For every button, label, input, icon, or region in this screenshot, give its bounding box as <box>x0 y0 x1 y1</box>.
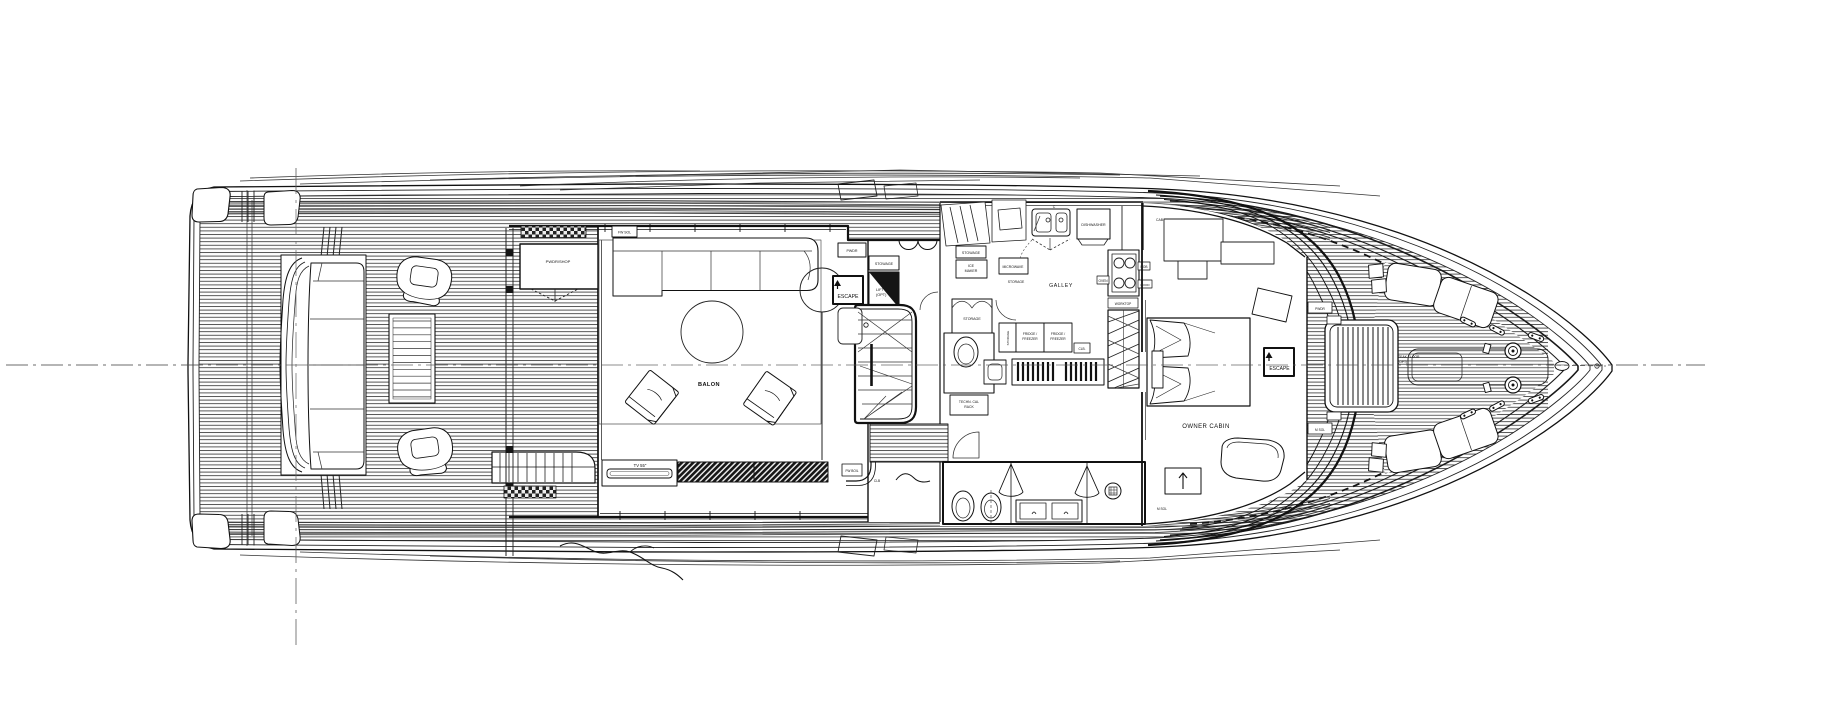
svg-text:FREEZER: FREEZER <box>1022 337 1038 341</box>
svg-text:RACK: RACK <box>964 405 974 409</box>
svg-text:STORAGE: STORAGE <box>1006 331 1010 346</box>
svg-text:WORKTOP: WORKTOP <box>1115 302 1131 306</box>
svg-text:(OPT): (OPT) <box>876 293 887 297</box>
svg-text:TEAK FLOOR: TEAK FLOOR <box>1398 355 1420 359</box>
svg-text:TV 55": TV 55" <box>634 463 647 468</box>
svg-text:CLB: CLB <box>874 479 880 483</box>
svg-text:CAB.: CAB. <box>1156 218 1164 222</box>
svg-text:ICE: ICE <box>968 264 975 268</box>
svg-text:FW SOL: FW SOL <box>618 231 631 235</box>
svg-text:STORAGE: STORAGE <box>963 317 981 321</box>
svg-text:FRIDGE /: FRIDGE / <box>1051 332 1065 336</box>
svg-text:GALLEY: GALLEY <box>1049 283 1073 289</box>
svg-text:STOWAGE: STOWAGE <box>875 262 894 266</box>
svg-text:PWDR: PWDR <box>847 249 858 253</box>
svg-text:ESCAPE: ESCAPE <box>1269 366 1290 372</box>
svg-text:PWDR/SHOP: PWDR/SHOP <box>546 259 571 264</box>
svg-text:CLB.: CLB. <box>1078 347 1085 351</box>
svg-text:MAKER: MAKER <box>965 269 978 273</box>
svg-text:FRIDGE /: FRIDGE / <box>1023 332 1037 336</box>
svg-text:PWDR: PWDR <box>1315 307 1325 311</box>
svg-text:FREEZER: FREEZER <box>1050 337 1066 341</box>
svg-text:STORAGE: STORAGE <box>1008 280 1025 284</box>
svg-text:ESCAPE: ESCAPE <box>837 294 859 300</box>
svg-text:M SOL: M SOL <box>1157 507 1167 511</box>
svg-text:OVEN: OVEN <box>1098 279 1108 283</box>
svg-text:STOWAGE: STOWAGE <box>962 251 981 255</box>
svg-text:TECHN. CAL: TECHN. CAL <box>959 400 979 404</box>
svg-text:LIFT: LIFT <box>876 288 884 292</box>
svg-text:OWNER CABIN: OWNER CABIN <box>1182 424 1229 430</box>
svg-text:BALON: BALON <box>698 382 720 388</box>
svg-text:FW BOIL: FW BOIL <box>845 469 858 473</box>
svg-text:M SOL: M SOL <box>1315 428 1325 432</box>
svg-text:MICROWAVE: MICROWAVE <box>1003 265 1025 269</box>
svg-text:DISHWASHER: DISHWASHER <box>1081 223 1106 227</box>
svg-text:(OPT): (OPT) <box>1398 360 1407 364</box>
